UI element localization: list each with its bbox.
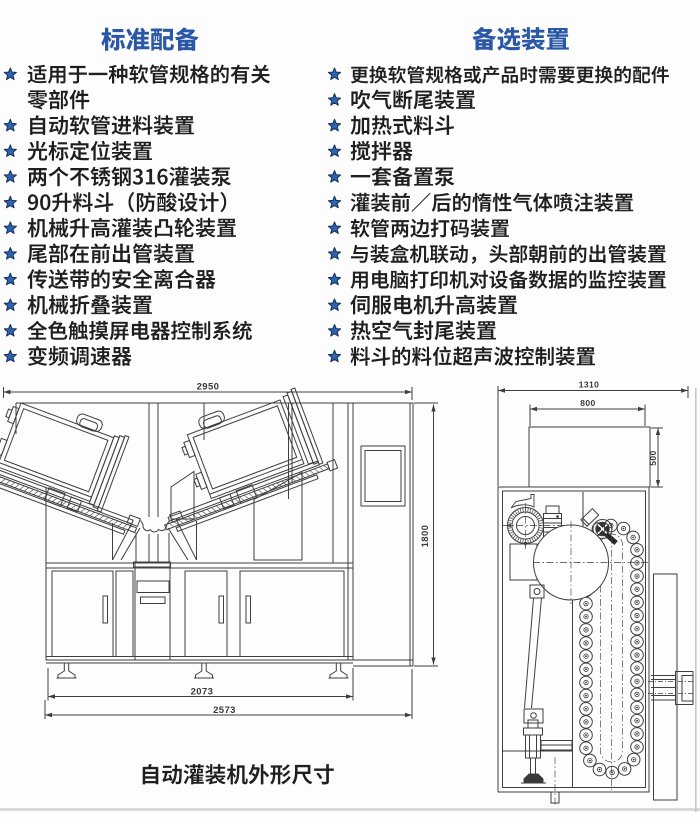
svg-text:2573: 2573 (213, 705, 236, 716)
svg-text:2950: 2950 (197, 382, 220, 393)
svg-text:1310: 1310 (579, 380, 600, 390)
svg-text:2073: 2073 (191, 687, 214, 698)
svg-text:1800: 1800 (420, 525, 431, 548)
svg-text:800: 800 (580, 398, 595, 408)
